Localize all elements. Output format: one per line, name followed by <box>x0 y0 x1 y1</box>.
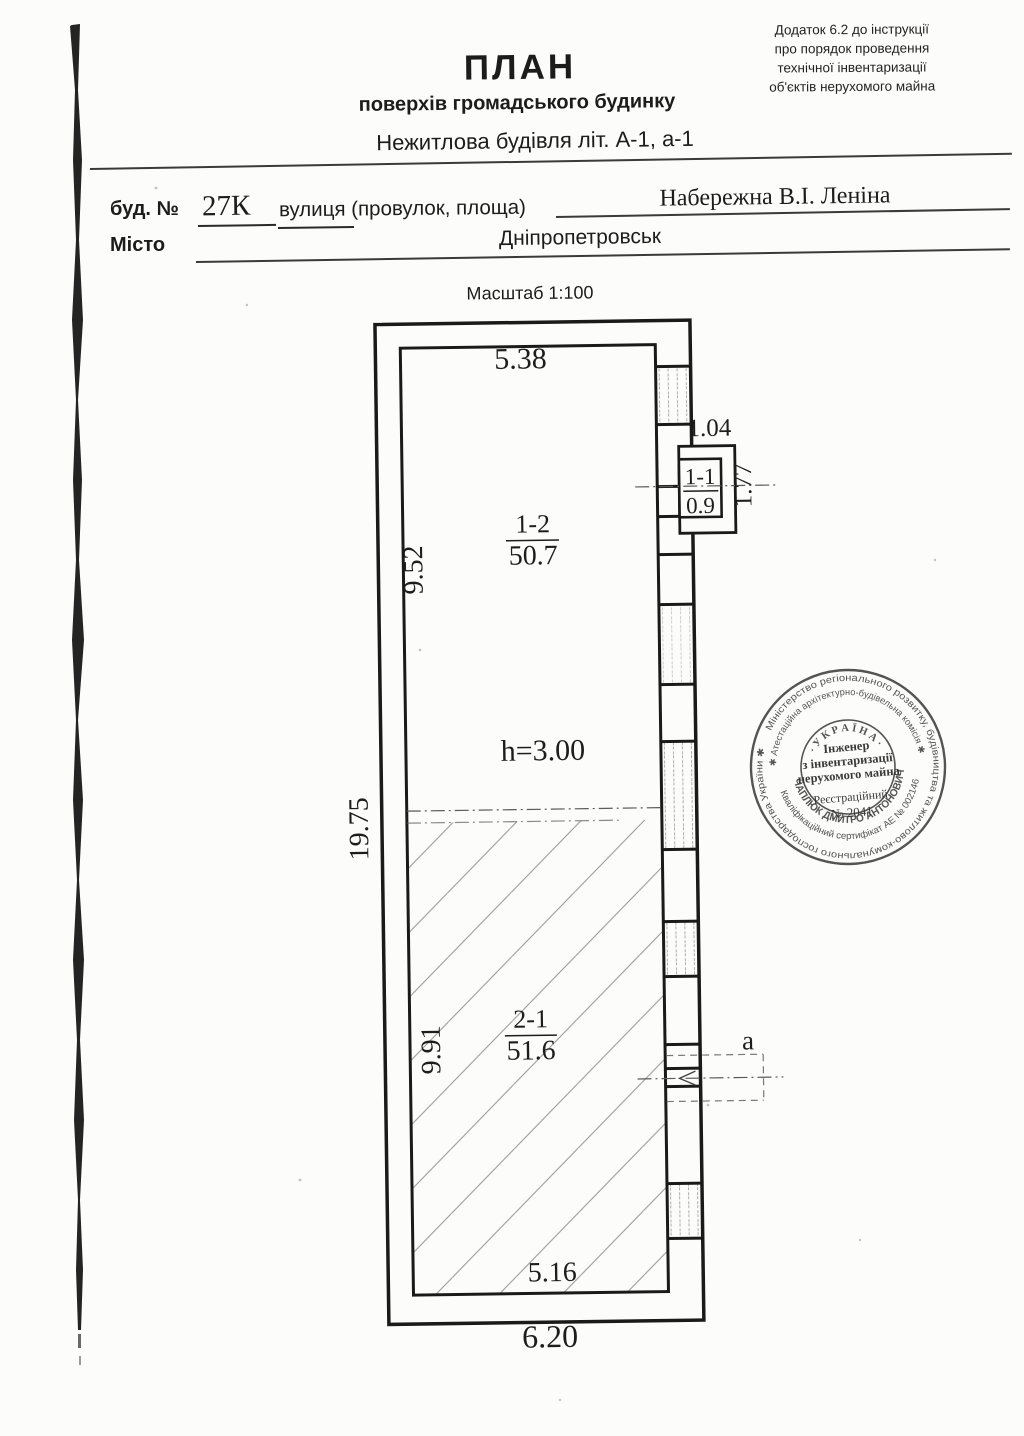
house-number-label: буд. № <box>110 198 179 221</box>
window-segment <box>663 741 696 849</box>
scanner-stripe-tail <box>78 1334 81 1348</box>
scanner-stripe-tail2 <box>79 1356 81 1365</box>
house-number-value: 27К <box>202 190 251 224</box>
annex-1-1 <box>679 446 736 534</box>
dim-ceiling-height: h=3.00 <box>500 734 585 768</box>
street-value: Набережна В.І. Леніна <box>600 182 950 214</box>
dim-bottom-outer-width: 6.20 <box>522 1318 578 1355</box>
engineer-seal-stamp: Міністерство регіонального розвитку, буд… <box>742 661 954 873</box>
city-value-underline <box>196 248 1010 262</box>
room-label-2-1: 2-1 <box>513 1004 548 1033</box>
door-label: а <box>742 1025 754 1055</box>
scanned-floor-plan-document: Додаток 6.2 до інструкції про порядок пр… <box>0 0 1024 1436</box>
floor-plan: 5.38 1.04 1-1 0.9 1.77 9.52 1-2 50.7 h=3… <box>335 313 789 1359</box>
appendix-line-1: Додаток 6.2 до інструкції <box>752 19 952 39</box>
dim-annex-depth: 1.77 <box>730 463 758 507</box>
room-partition-line <box>407 808 662 812</box>
dim-overall-height: 19.75 <box>344 797 376 860</box>
scanner-edge-stripe <box>70 24 84 1330</box>
dim-bottom-inner-width: 5.16 <box>527 1257 576 1289</box>
appendix-line-2: про порядок проведення <box>752 38 952 58</box>
dim-room2-depth: 9.91 <box>416 1025 448 1074</box>
house-number-underline <box>198 224 276 227</box>
scale-label: Масштаб 1:100 <box>430 282 630 305</box>
building-type-line: Нежитлова будівля літ. А-1, а-1 <box>335 125 735 157</box>
room-label-1-2: 1-2 <box>515 509 550 538</box>
building-line-underline <box>90 153 1012 170</box>
city-value: Дніпропетровськ <box>470 224 690 251</box>
street-label: вулиця (провулок, площа) <box>279 196 526 223</box>
appendix-line-3: технічної інвентаризації <box>752 57 952 77</box>
dim-top-width: 5.38 <box>494 342 547 376</box>
page-subtitle: поверхів громадського будинку <box>317 90 717 118</box>
window-segment <box>669 1183 701 1238</box>
city-label: Місто <box>110 234 165 257</box>
dim-annex-width: 1.04 <box>687 415 732 443</box>
area-1-2: 50.7 <box>508 540 557 572</box>
dim-room1-depth: 9.52 <box>398 545 430 594</box>
appendix-line-4: об'єктів нерухомого майна <box>752 76 952 96</box>
window-segment <box>665 921 697 976</box>
window-segment <box>661 604 693 684</box>
appendix-note: Додаток 6.2 до інструкції про порядок пр… <box>752 19 953 96</box>
street-word-underline <box>278 226 354 229</box>
room-label-1-1: 1-1 <box>685 464 716 489</box>
area-1-1: 0.9 <box>686 493 715 518</box>
page-title: ПЛАН <box>320 46 720 91</box>
area-2-1: 51.6 <box>506 1035 555 1067</box>
window-segment <box>658 366 690 424</box>
